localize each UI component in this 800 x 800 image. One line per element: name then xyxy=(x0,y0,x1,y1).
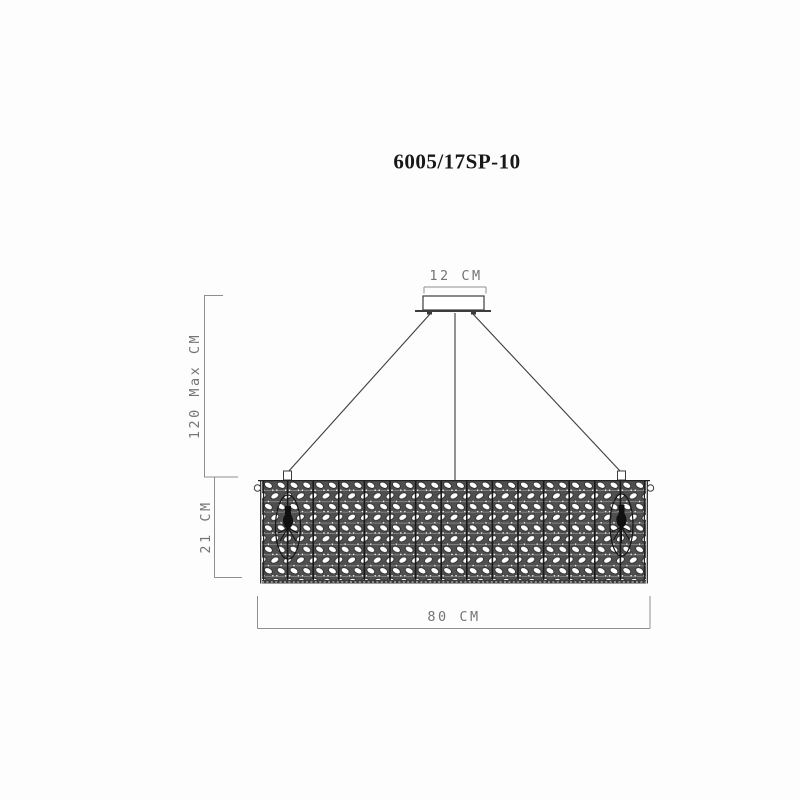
model-number: 6005/17SP-10 xyxy=(393,150,520,175)
shade-width-label: 80 CM xyxy=(427,609,480,625)
canopy-width-label: 12 CM xyxy=(429,268,482,284)
shade-height-dimension-line xyxy=(214,477,242,578)
drop-height-label: 120 Max CM xyxy=(187,333,203,439)
wire-connector-left xyxy=(284,471,292,480)
wire-connector-right xyxy=(618,471,626,480)
lamp-dimension-diagram: 6005/17SP-10 12 CM 120 Max CM 21 CM 80 C… xyxy=(0,0,800,800)
shade-height-label: 21 CM xyxy=(198,500,214,553)
lamp-shade-body xyxy=(254,480,653,584)
canopy-width-dimension-line xyxy=(424,287,486,294)
suspension-wire-right xyxy=(473,314,621,472)
ceiling-canopy xyxy=(415,296,491,315)
finial-left xyxy=(254,485,260,491)
technical-drawing xyxy=(0,0,800,800)
suspension-wire-left xyxy=(288,314,430,472)
finial-right xyxy=(647,485,653,491)
drop-height-dimension-line xyxy=(204,296,238,478)
